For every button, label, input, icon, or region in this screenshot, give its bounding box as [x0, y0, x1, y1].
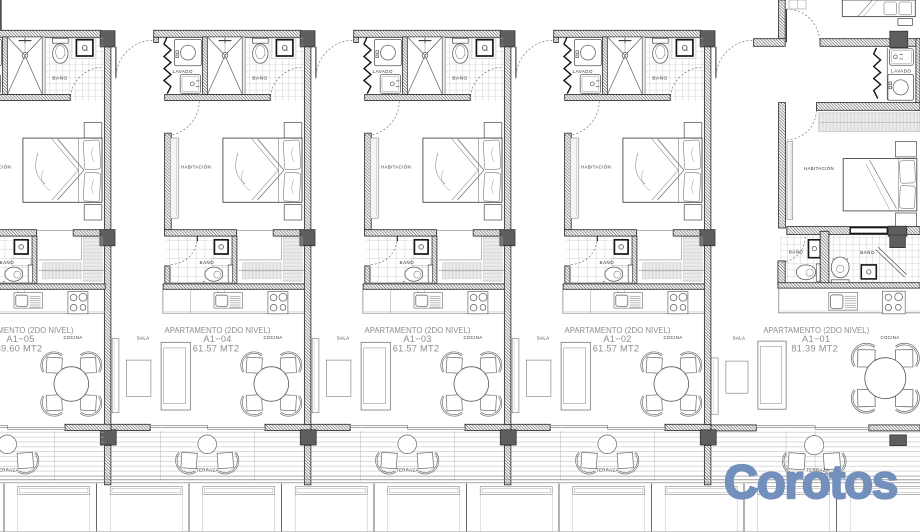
- svg-text:TERRAZA: TERRAZA: [196, 468, 219, 473]
- svg-text:81.39 MT2: 81.39 MT2: [791, 343, 838, 353]
- svg-text:SALA: SALA: [733, 335, 746, 340]
- svg-text:A1−02: A1−02: [603, 334, 631, 344]
- svg-text:LAVADO: LAVADO: [173, 69, 193, 74]
- svg-text:BAÑO: BAÑO: [789, 249, 804, 255]
- svg-text:LAVADO: LAVADO: [891, 69, 911, 74]
- svg-text:A1−01: A1−01: [802, 334, 830, 344]
- svg-text:61.57 MT2: 61.57 MT2: [193, 343, 240, 353]
- svg-text:A1−05: A1−05: [6, 334, 34, 344]
- svg-text:A1−04: A1−04: [203, 334, 231, 344]
- svg-text:BAÑO: BAÑO: [252, 74, 267, 81]
- svg-text:SALA: SALA: [137, 335, 150, 340]
- svg-text:Corotos: Corotos: [724, 455, 897, 508]
- svg-text:A1−03: A1−03: [403, 334, 431, 344]
- svg-text:BAÑO: BAÑO: [199, 259, 214, 265]
- svg-text:61.57 MT2: 61.57 MT2: [393, 343, 440, 353]
- svg-text:COCINA: COCINA: [880, 335, 899, 340]
- svg-text:59.60 MT2: 59.60 MT2: [0, 343, 42, 353]
- svg-text:COCINA: COCINA: [263, 335, 282, 340]
- svg-text:BAÑO: BAÑO: [860, 249, 875, 255]
- svg-text:61.57 MT2: 61.57 MT2: [593, 343, 640, 353]
- svg-text:HABITACIÓN: HABITACIÓN: [181, 165, 211, 170]
- svg-text:HABITACIÓN: HABITACIÓN: [804, 166, 834, 171]
